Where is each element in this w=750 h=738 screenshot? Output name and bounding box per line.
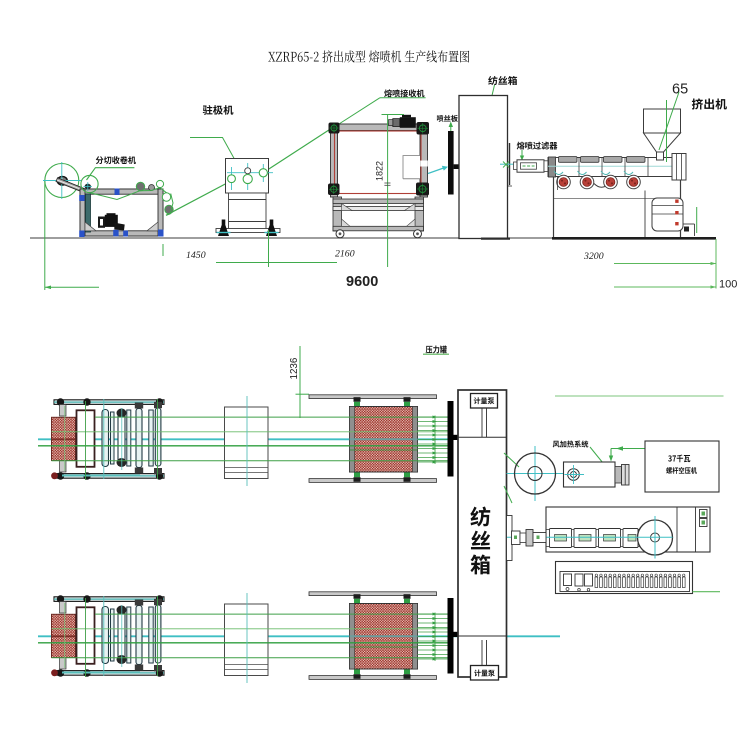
svg-text:1450: 1450 bbox=[186, 250, 206, 261]
svg-text:65: 65 bbox=[672, 82, 688, 98]
svg-text:2160: 2160 bbox=[335, 249, 355, 260]
svg-text:100: 100 bbox=[719, 279, 737, 291]
svg-text:3200: 3200 bbox=[583, 251, 604, 262]
svg-text:1236: 1236 bbox=[289, 357, 300, 379]
svg-text:9600: 9600 bbox=[346, 274, 378, 290]
svg-text:1822: 1822 bbox=[375, 161, 385, 181]
